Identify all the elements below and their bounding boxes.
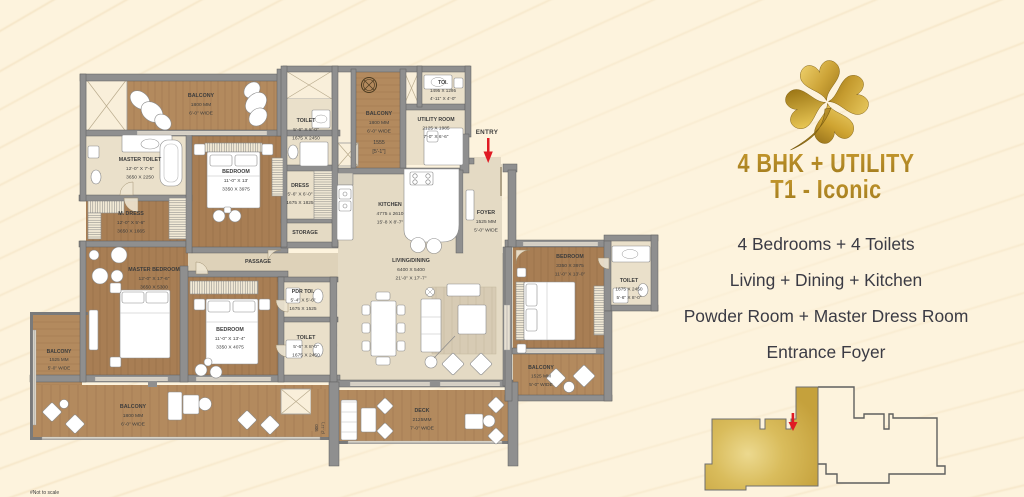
svg-text:5'-6" X 8'-0": 5'-6" X 8'-0" xyxy=(293,344,319,350)
svg-text:TOILET: TOILET xyxy=(620,278,639,284)
svg-text:TOILET: TOILET xyxy=(297,118,317,124)
svg-text:6'-0" WIDE: 6'-0" WIDE xyxy=(189,111,214,117)
svg-text:[5'-1"]: [5'-1"] xyxy=(372,149,386,155)
svg-text:11'-0" X 13'-4": 11'-0" X 13'-4" xyxy=(215,336,246,342)
svg-text:T1 - Iconic: T1 - Iconic xyxy=(770,175,881,204)
svg-text:STORAGE: STORAGE xyxy=(292,230,318,236)
svg-text:11'-0" X 13'-0": 11'-0" X 13'-0" xyxy=(555,272,586,278)
svg-text:5'-6" X 6'-0": 5'-6" X 6'-0" xyxy=(288,191,313,197)
svg-text:BALCONY: BALCONY xyxy=(366,111,393,117)
svg-text:3350 X 3975: 3350 X 3975 xyxy=(556,263,584,269)
svg-text:6400 X 5400: 6400 X 5400 xyxy=(397,267,425,273)
svg-text:1495 X 1295: 1495 X 1295 xyxy=(430,88,457,93)
svg-text:7'-0" WIDE: 7'-0" WIDE xyxy=(410,426,435,432)
svg-text:1675 X 2450: 1675 X 2450 xyxy=(615,286,643,292)
svg-text:1675 X 1525: 1675 X 1525 xyxy=(289,306,317,312)
svg-text:6'-0" WIDE: 6'-0" WIDE xyxy=(367,129,392,135)
svg-text:3350 X 4075: 3350 X 4075 xyxy=(216,345,244,351)
svg-text:BEDROOM: BEDROOM xyxy=(222,169,250,175)
svg-text:Powder Room + Master Dress Roo: Powder Room + Master Dress Room xyxy=(684,306,969,326)
svg-text:1800 MM: 1800 MM xyxy=(191,102,211,108)
svg-text:4'-11" X 4'-0": 4'-11" X 4'-0" xyxy=(430,96,456,101)
svg-text:5'-0" WIDE: 5'-0" WIDE xyxy=(529,382,552,388)
svg-text:PDR TOI.: PDR TOI. xyxy=(292,289,315,295)
svg-text:#Not to scale: #Not to scale xyxy=(30,490,59,496)
svg-text:1525 MM: 1525 MM xyxy=(531,373,551,379)
svg-text:Living + Dining + Kitchen: Living + Dining + Kitchen xyxy=(730,270,922,290)
svg-text:2125 X 1985: 2125 X 1985 xyxy=(422,125,450,131)
svg-text:12'-0" X 7'-5": 12'-0" X 7'-5" xyxy=(126,166,154,172)
svg-text:1800 MM: 1800 MM xyxy=(123,413,143,419)
svg-text:15'-8 X 8'-7": 15'-8 X 8'-7" xyxy=(377,220,404,226)
svg-text:1675 X 2450: 1675 X 2450 xyxy=(292,353,320,359)
svg-text:3350 X 3975: 3350 X 3975 xyxy=(222,187,250,193)
svg-text:2125MM: 2125MM xyxy=(412,417,431,423)
svg-text:LIVING/DINING: LIVING/DINING xyxy=(392,258,430,264)
svg-text:7'-0" X 6'-6": 7'-0" X 6'-6" xyxy=(424,134,449,140)
svg-text:BALCONY: BALCONY xyxy=(120,404,147,410)
svg-text:BALCONY: BALCONY xyxy=(528,365,554,371)
svg-text:5'-0" WIDE: 5'-0" WIDE xyxy=(474,228,499,234)
svg-text:UTILITY ROOM: UTILITY ROOM xyxy=(417,117,454,123)
svg-text:1555: 1555 xyxy=(373,140,385,146)
svg-text:Entrance Foyer: Entrance Foyer xyxy=(767,342,886,362)
svg-text:4 BHK + UTILITY: 4 BHK + UTILITY xyxy=(738,149,915,178)
svg-text:3650 X 5300: 3650 X 5300 xyxy=(140,285,168,291)
svg-text:6'-0" WIDE: 6'-0" WIDE xyxy=(121,422,146,428)
svg-text:1525 MM: 1525 MM xyxy=(476,219,496,225)
svg-text:FOYER: FOYER xyxy=(477,210,495,216)
svg-text:BEDROOM: BEDROOM xyxy=(216,327,244,333)
svg-text:KITCHEN: KITCHEN xyxy=(378,202,402,208)
svg-text:1525 MM: 1525 MM xyxy=(49,357,68,362)
svg-text:1800 MM: 1800 MM xyxy=(369,120,389,126)
svg-text:11'-0" X 13': 11'-0" X 13' xyxy=(224,178,249,184)
svg-text:4775 x 2610: 4775 x 2610 xyxy=(377,211,404,217)
svg-text:BALCONY: BALCONY xyxy=(188,93,215,99)
svg-text:5'-4" X 5'-6": 5'-4" X 5'-6" xyxy=(291,297,316,303)
svg-text:MASTER TOILET: MASTER TOILET xyxy=(119,157,162,163)
svg-text:(2'-11"): (2'-11") xyxy=(321,421,325,434)
svg-text:1675 X 2450: 1675 X 2450 xyxy=(292,136,320,142)
svg-text:4 Bedrooms + 4 Toilets: 4 Bedrooms + 4 Toilets xyxy=(737,234,914,254)
svg-text:900: 900 xyxy=(314,424,319,432)
svg-text:5'-0" WIDE: 5'-0" WIDE xyxy=(48,365,70,370)
svg-text:DECK: DECK xyxy=(414,408,429,414)
svg-text:1675 X 1825: 1675 X 1825 xyxy=(286,200,314,206)
svg-text:ENTRY: ENTRY xyxy=(476,129,499,136)
svg-text:PASSAGE: PASSAGE xyxy=(245,259,271,265)
svg-text:BEDROOM: BEDROOM xyxy=(556,254,584,260)
svg-text:M. DRESS: M. DRESS xyxy=(118,211,144,217)
svg-text:3650 X 1665: 3650 X 1665 xyxy=(117,229,145,235)
svg-text:BALCONY: BALCONY xyxy=(47,349,72,355)
svg-text:TOILET: TOILET xyxy=(297,335,317,341)
svg-text:MASTER BEDROOM: MASTER BEDROOM xyxy=(128,267,180,273)
svg-text:5'-6" X 8'-0": 5'-6" X 8'-0" xyxy=(617,295,642,301)
svg-text:21'-0" X 17'-7": 21'-0" X 17'-7" xyxy=(396,276,427,282)
svg-text:TOI.: TOI. xyxy=(438,80,448,86)
svg-text:3650 X 2250: 3650 X 2250 xyxy=(126,175,154,181)
svg-text:DRESS: DRESS xyxy=(291,183,309,189)
svg-text:12'-0" X 5'-6": 12'-0" X 5'-6" xyxy=(117,220,145,226)
svg-text:12'-0" X 17'-6": 12'-0" X 17'-6" xyxy=(139,276,170,282)
svg-text:5'-6" X 8'-0": 5'-6" X 8'-0" xyxy=(293,127,319,133)
